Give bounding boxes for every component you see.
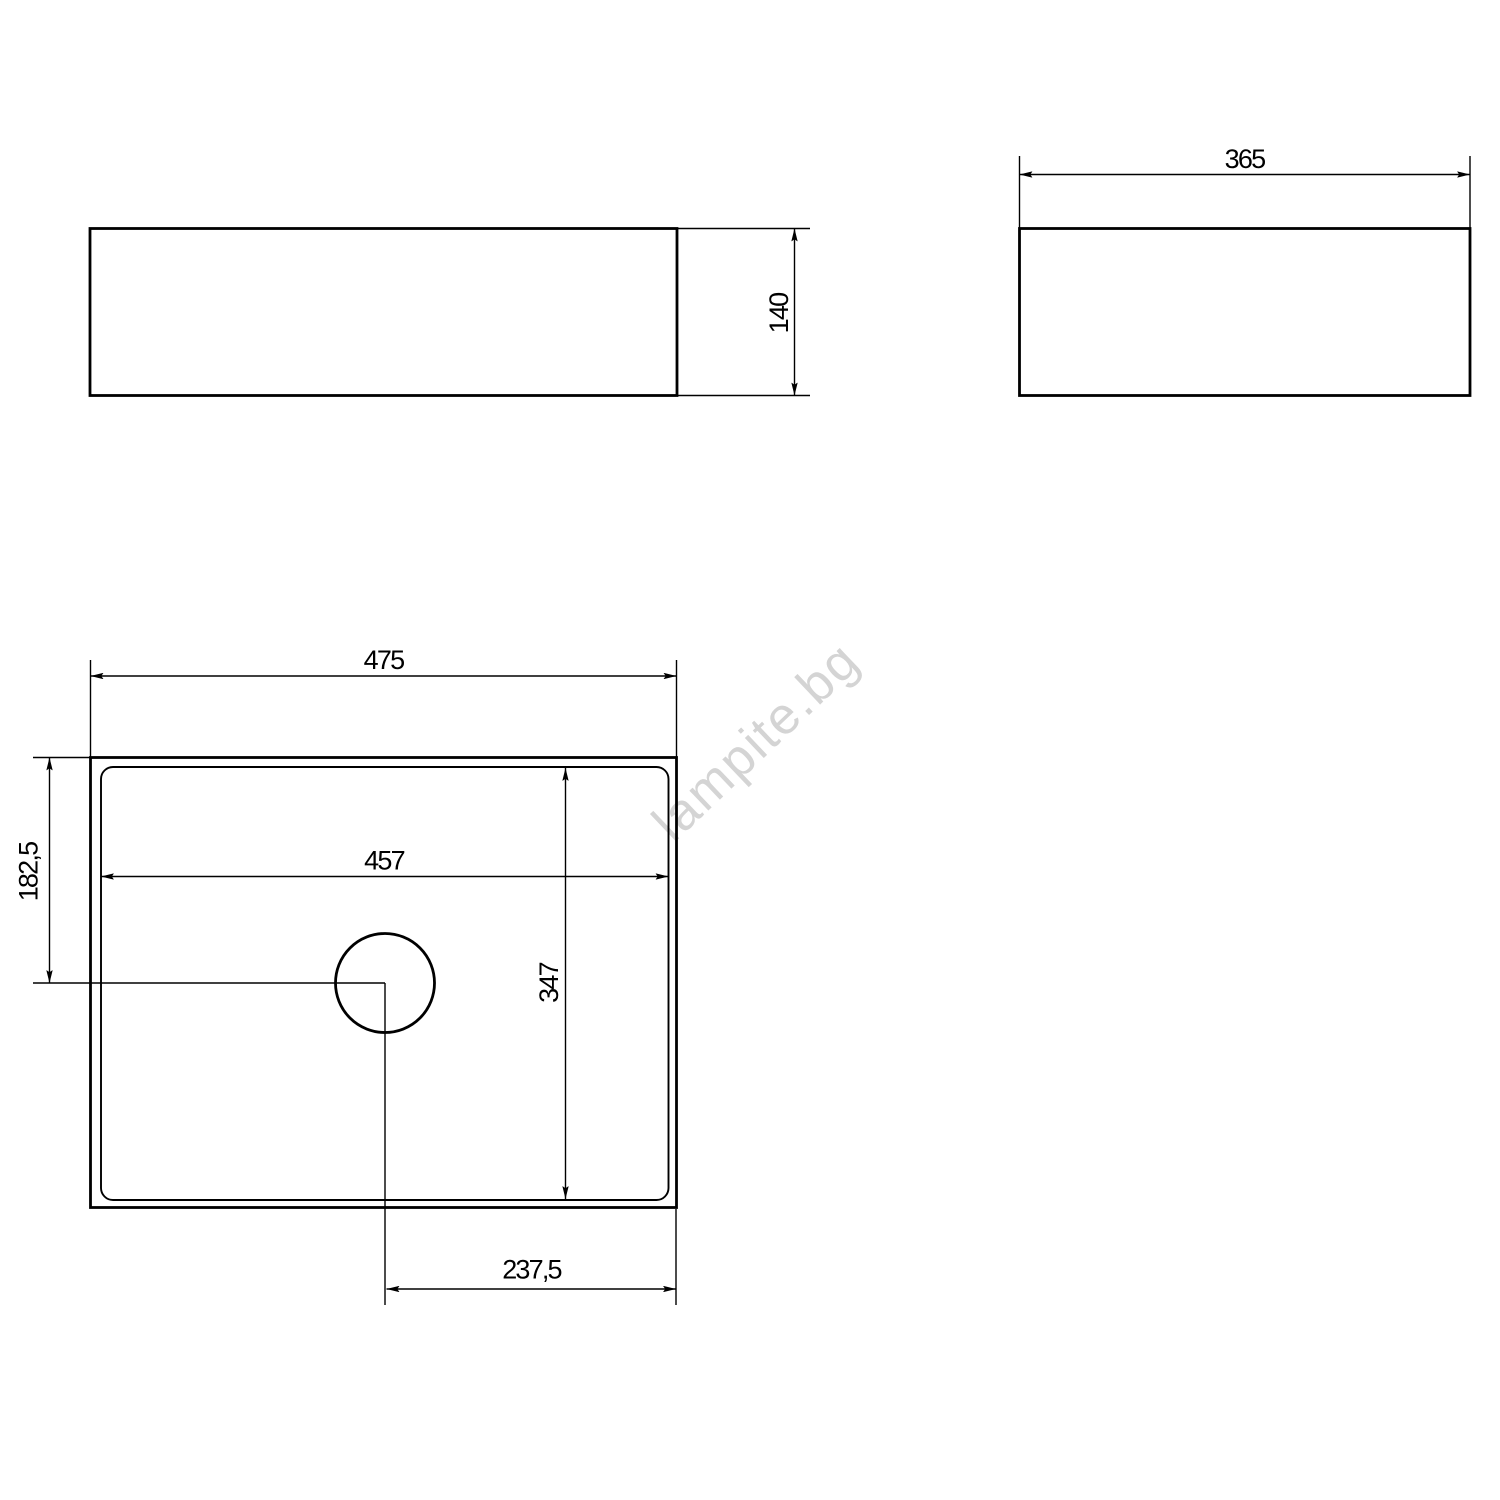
svg-text:182,5: 182,5	[14, 842, 44, 901]
svg-text:140: 140	[764, 293, 794, 333]
svg-text:475: 475	[364, 645, 404, 675]
svg-text:237,5: 237,5	[502, 1255, 561, 1285]
svg-text:347: 347	[534, 962, 564, 1002]
svg-text:365: 365	[1225, 144, 1265, 174]
svg-text:457: 457	[364, 846, 404, 876]
